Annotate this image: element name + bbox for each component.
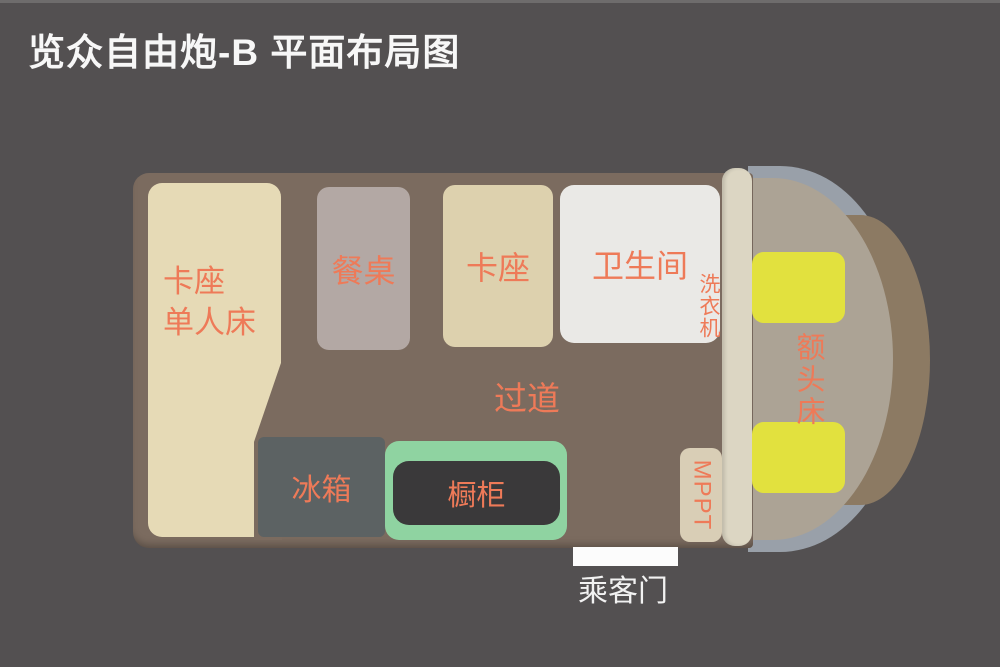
area-cabinet: 橱柜 (385, 441, 567, 540)
top-edge-line (0, 0, 1000, 3)
cab-over-bed-label: 额头床 (792, 332, 824, 442)
aisle-label: 过道 (494, 372, 560, 420)
page-title: 览众自由炮-B 平面布局图 (28, 22, 460, 76)
washing-machine-label: 洗衣机 (697, 273, 719, 339)
area-bathroom: 卫生间 洗衣机 (560, 185, 720, 343)
area-booth: 卡座 (443, 185, 553, 347)
booth-label: 卡座 (466, 243, 530, 289)
cab-partition-wall (722, 168, 752, 546)
passenger-door-label: 乘客门 (578, 566, 668, 610)
booth-single-bed-label: 卡座 单人床 (163, 261, 256, 343)
cabinet-label: 橱柜 (447, 472, 505, 514)
cabinet-counter: 橱柜 (393, 461, 560, 525)
bathroom-label: 卫生间 (592, 241, 688, 287)
passenger-door-marker (573, 547, 678, 566)
area-mppt: MPPT (680, 448, 722, 542)
area-dining-table: 餐桌 (317, 187, 410, 350)
fridge-label: 冰箱 (292, 465, 352, 509)
area-fridge: 冰箱 (258, 437, 385, 537)
cab-seat-driver (752, 252, 845, 323)
mppt-label: MPPT (687, 460, 715, 531)
dining-table-label: 餐桌 (331, 246, 395, 292)
